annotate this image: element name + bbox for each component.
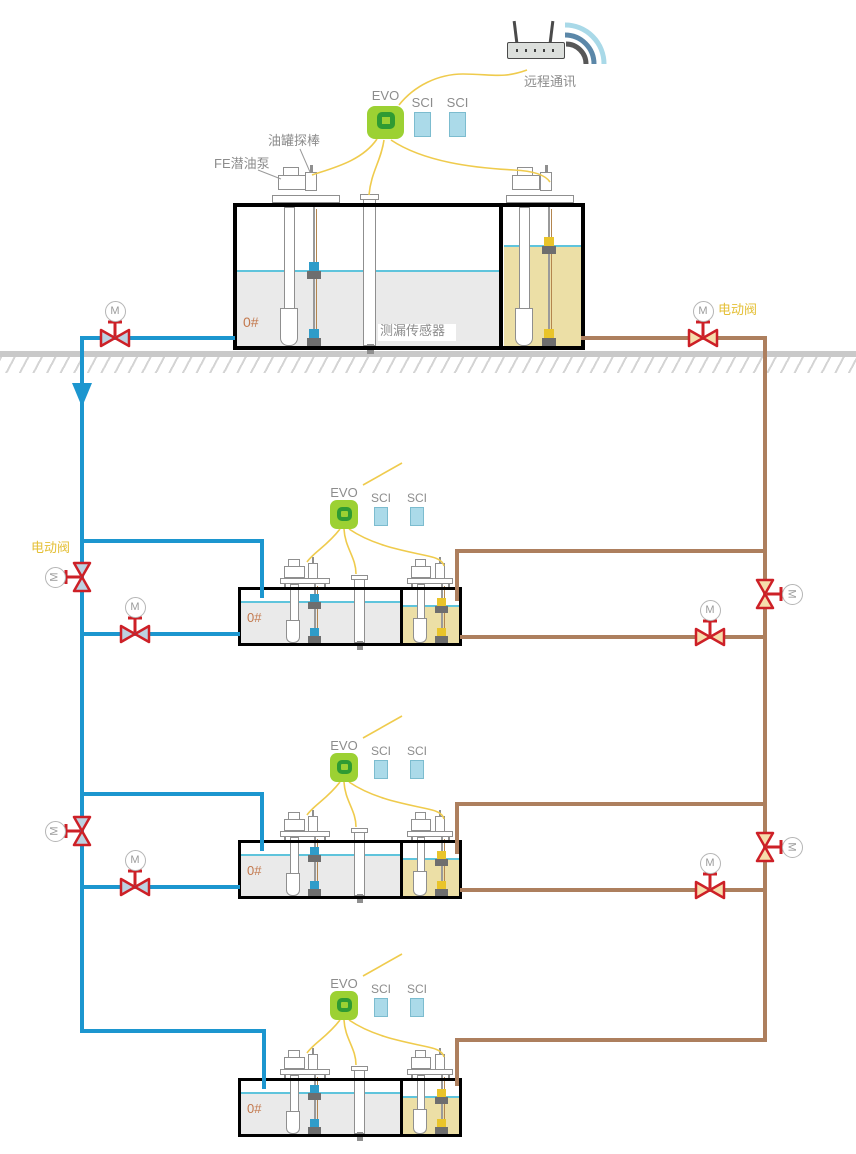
sci-module [449, 112, 466, 137]
wire-probe-right-s1 [391, 140, 550, 182]
fuel-grade-label: 0# [247, 610, 277, 627]
fuel-grade-label: 0# [247, 1101, 277, 1118]
probe-callout-label: 油罐探棒 [268, 134, 332, 148]
fuel-grade-label: 0# [247, 863, 277, 880]
probe-label-leader [300, 149, 310, 172]
pump-callout-label: FE潜油泵 [214, 157, 278, 171]
leak-sensor-label: 测漏传感器 [378, 324, 456, 341]
sci-module [414, 112, 431, 137]
sci-label: SCI [395, 745, 439, 757]
evo-label: EVO [364, 89, 407, 103]
fuel-grade-label: 0# [243, 314, 277, 332]
electric-valve-label: 电动阀 [31, 541, 77, 556]
fuel-station-monitoring-diagram: 远程通讯0#测漏传感器油罐探棒FE潜油泵EVOSCISCI0#EVOSCISCI… [0, 0, 856, 1154]
sci-label: SCI [441, 96, 474, 109]
sci-module [410, 507, 424, 526]
sci-module [410, 998, 424, 1017]
evo-screen [337, 507, 352, 521]
sci-module [410, 760, 424, 779]
sci-module [374, 760, 388, 779]
sci-label: SCI [395, 983, 439, 995]
wire-leak-s1 [369, 140, 384, 195]
sci-module [374, 998, 388, 1017]
sci-label: SCI [406, 96, 439, 109]
electric-valve-label: 电动阀 [718, 303, 764, 318]
sci-label: SCI [395, 492, 439, 504]
pump-label-leader [258, 170, 281, 179]
sci-module [374, 507, 388, 526]
evo-screen [377, 112, 395, 129]
wifi-arc-inner [566, 44, 586, 64]
router-led-dots [516, 49, 556, 52]
evo-screen [337, 760, 352, 774]
remote-comm-label: 远程通讯 [524, 75, 596, 90]
evo-screen [337, 998, 352, 1012]
wires-layer [0, 0, 856, 1154]
